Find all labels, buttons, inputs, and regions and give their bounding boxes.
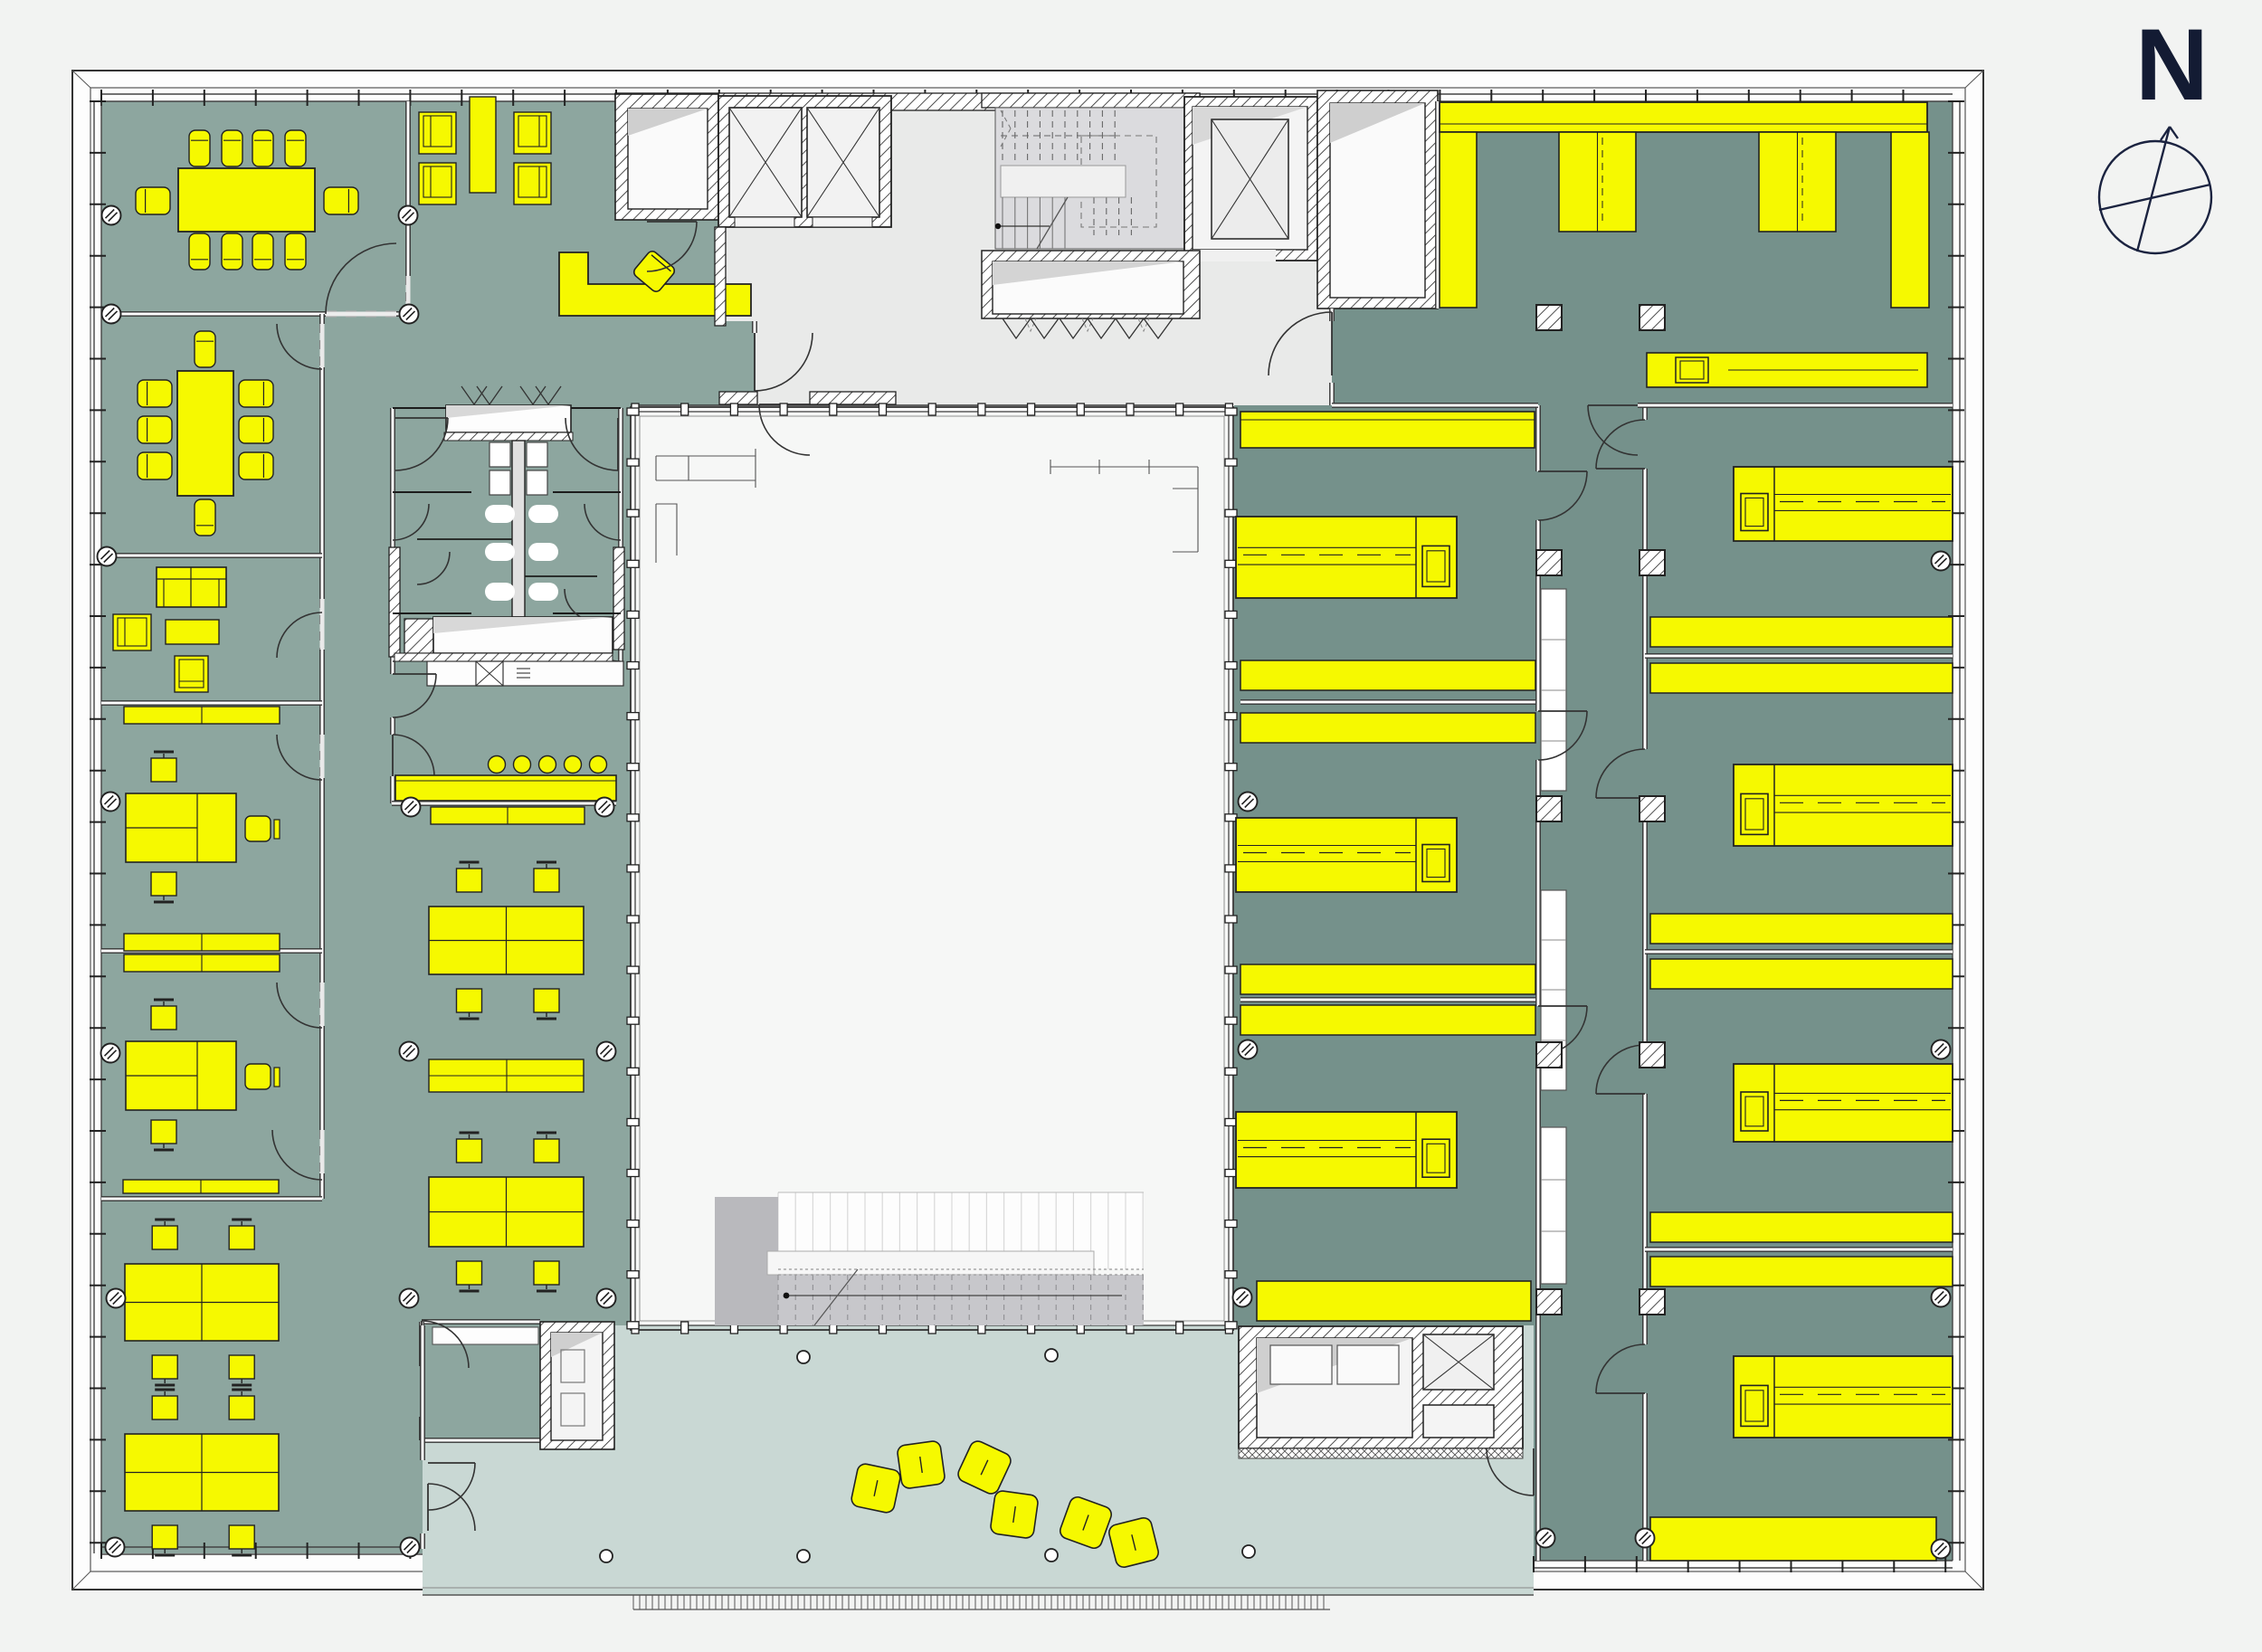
svg-text:N: N <box>2135 8 2209 121</box>
